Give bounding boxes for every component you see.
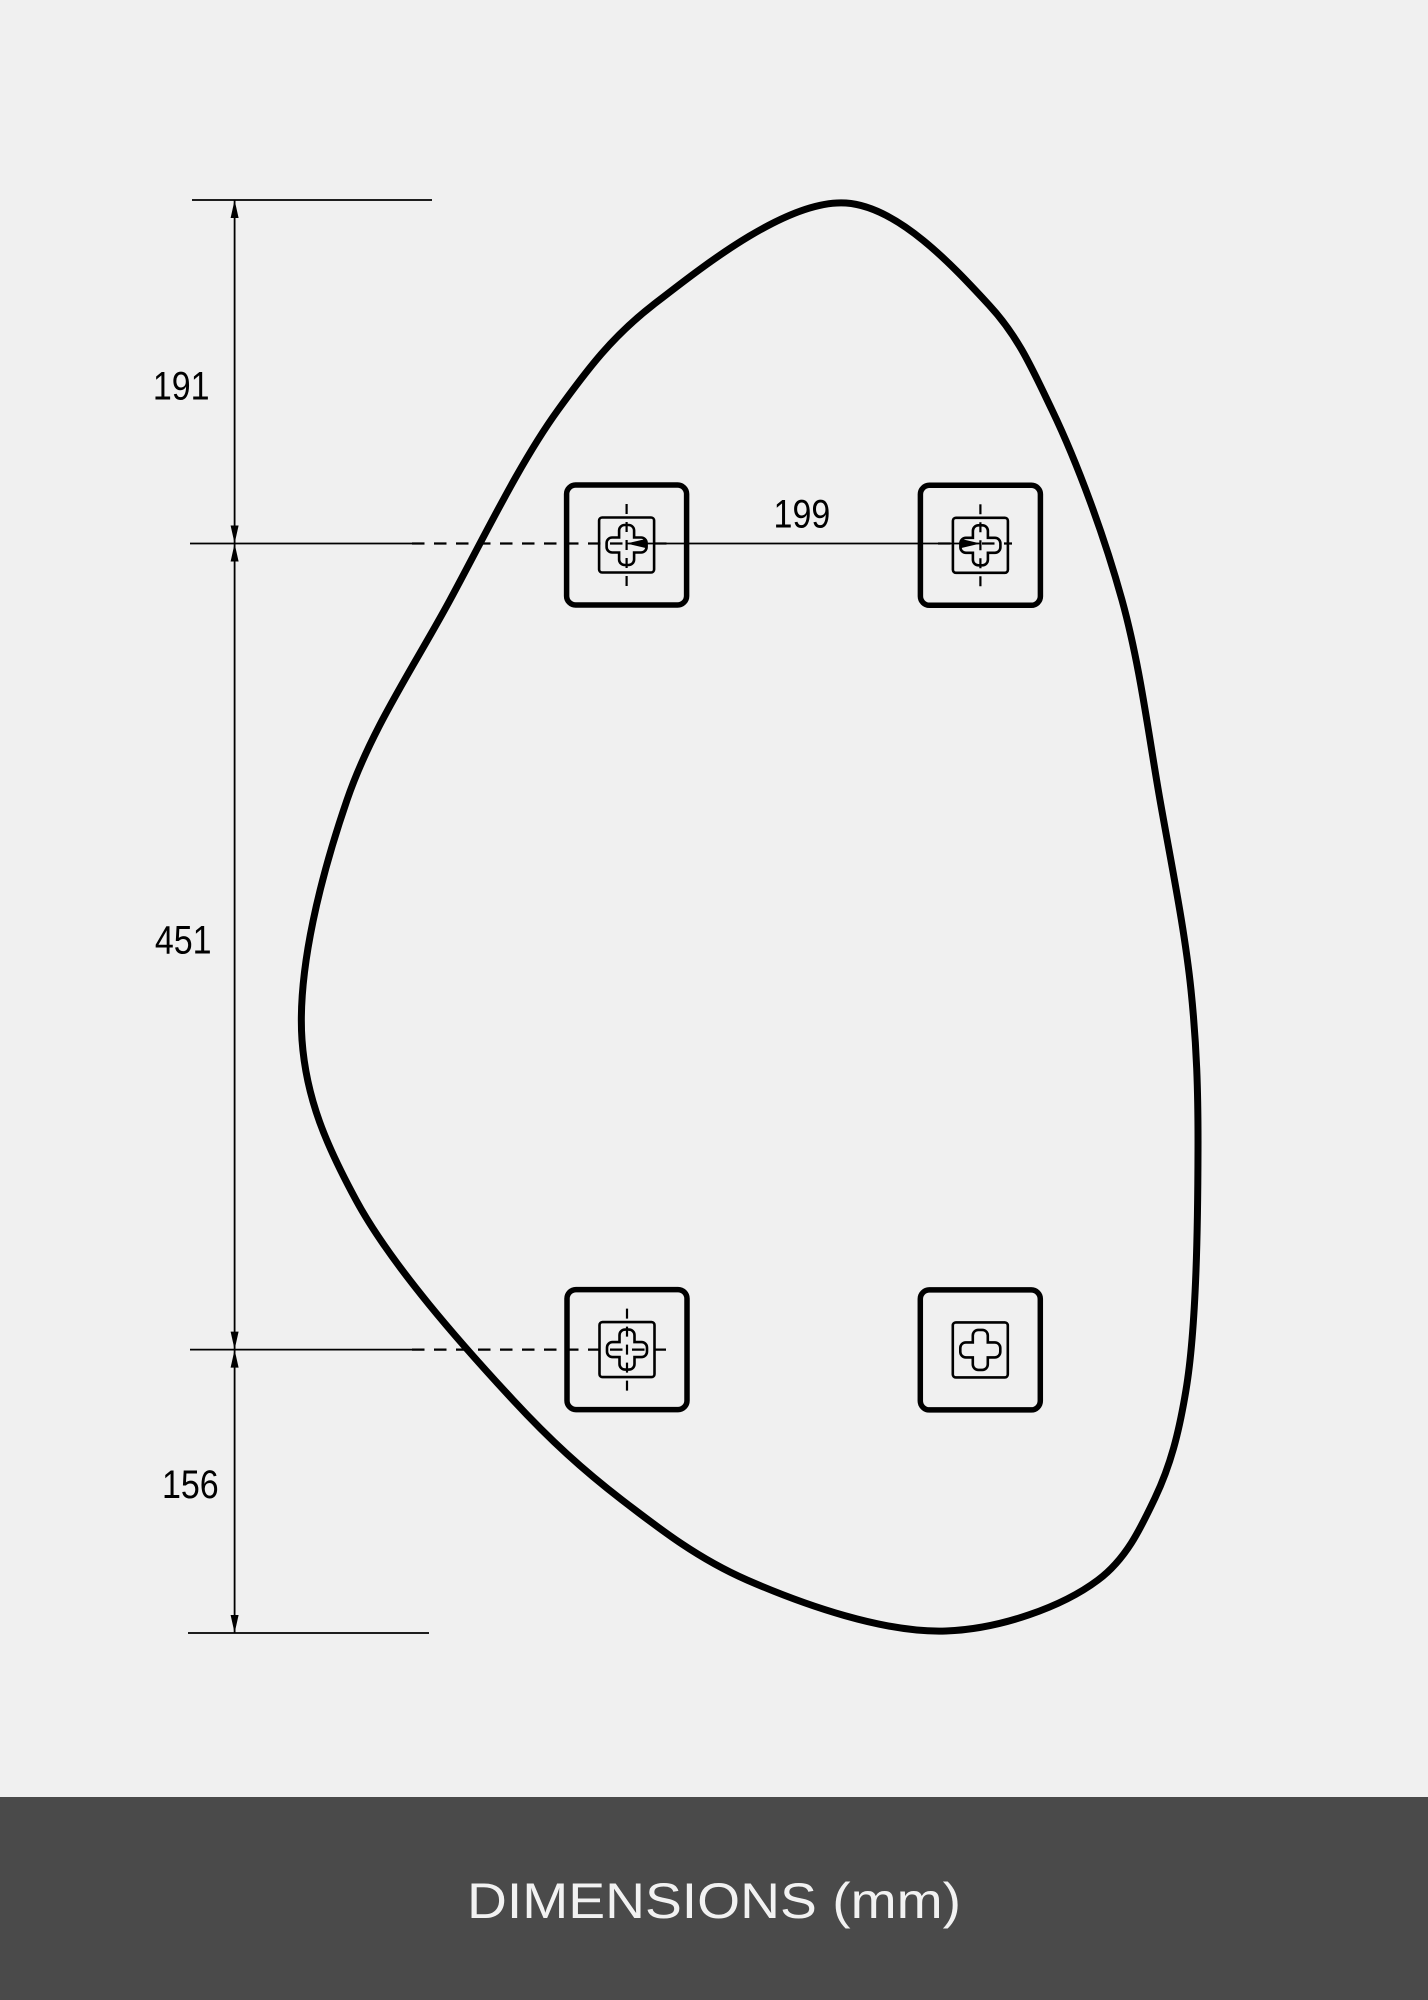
svg-text:451: 451	[155, 917, 212, 962]
svg-text:199: 199	[774, 491, 831, 536]
svg-text:DIMENSIONS (mm): DIMENSIONS (mm)	[467, 1873, 961, 1929]
svg-text:156: 156	[162, 1461, 219, 1506]
svg-text:191: 191	[153, 363, 210, 408]
